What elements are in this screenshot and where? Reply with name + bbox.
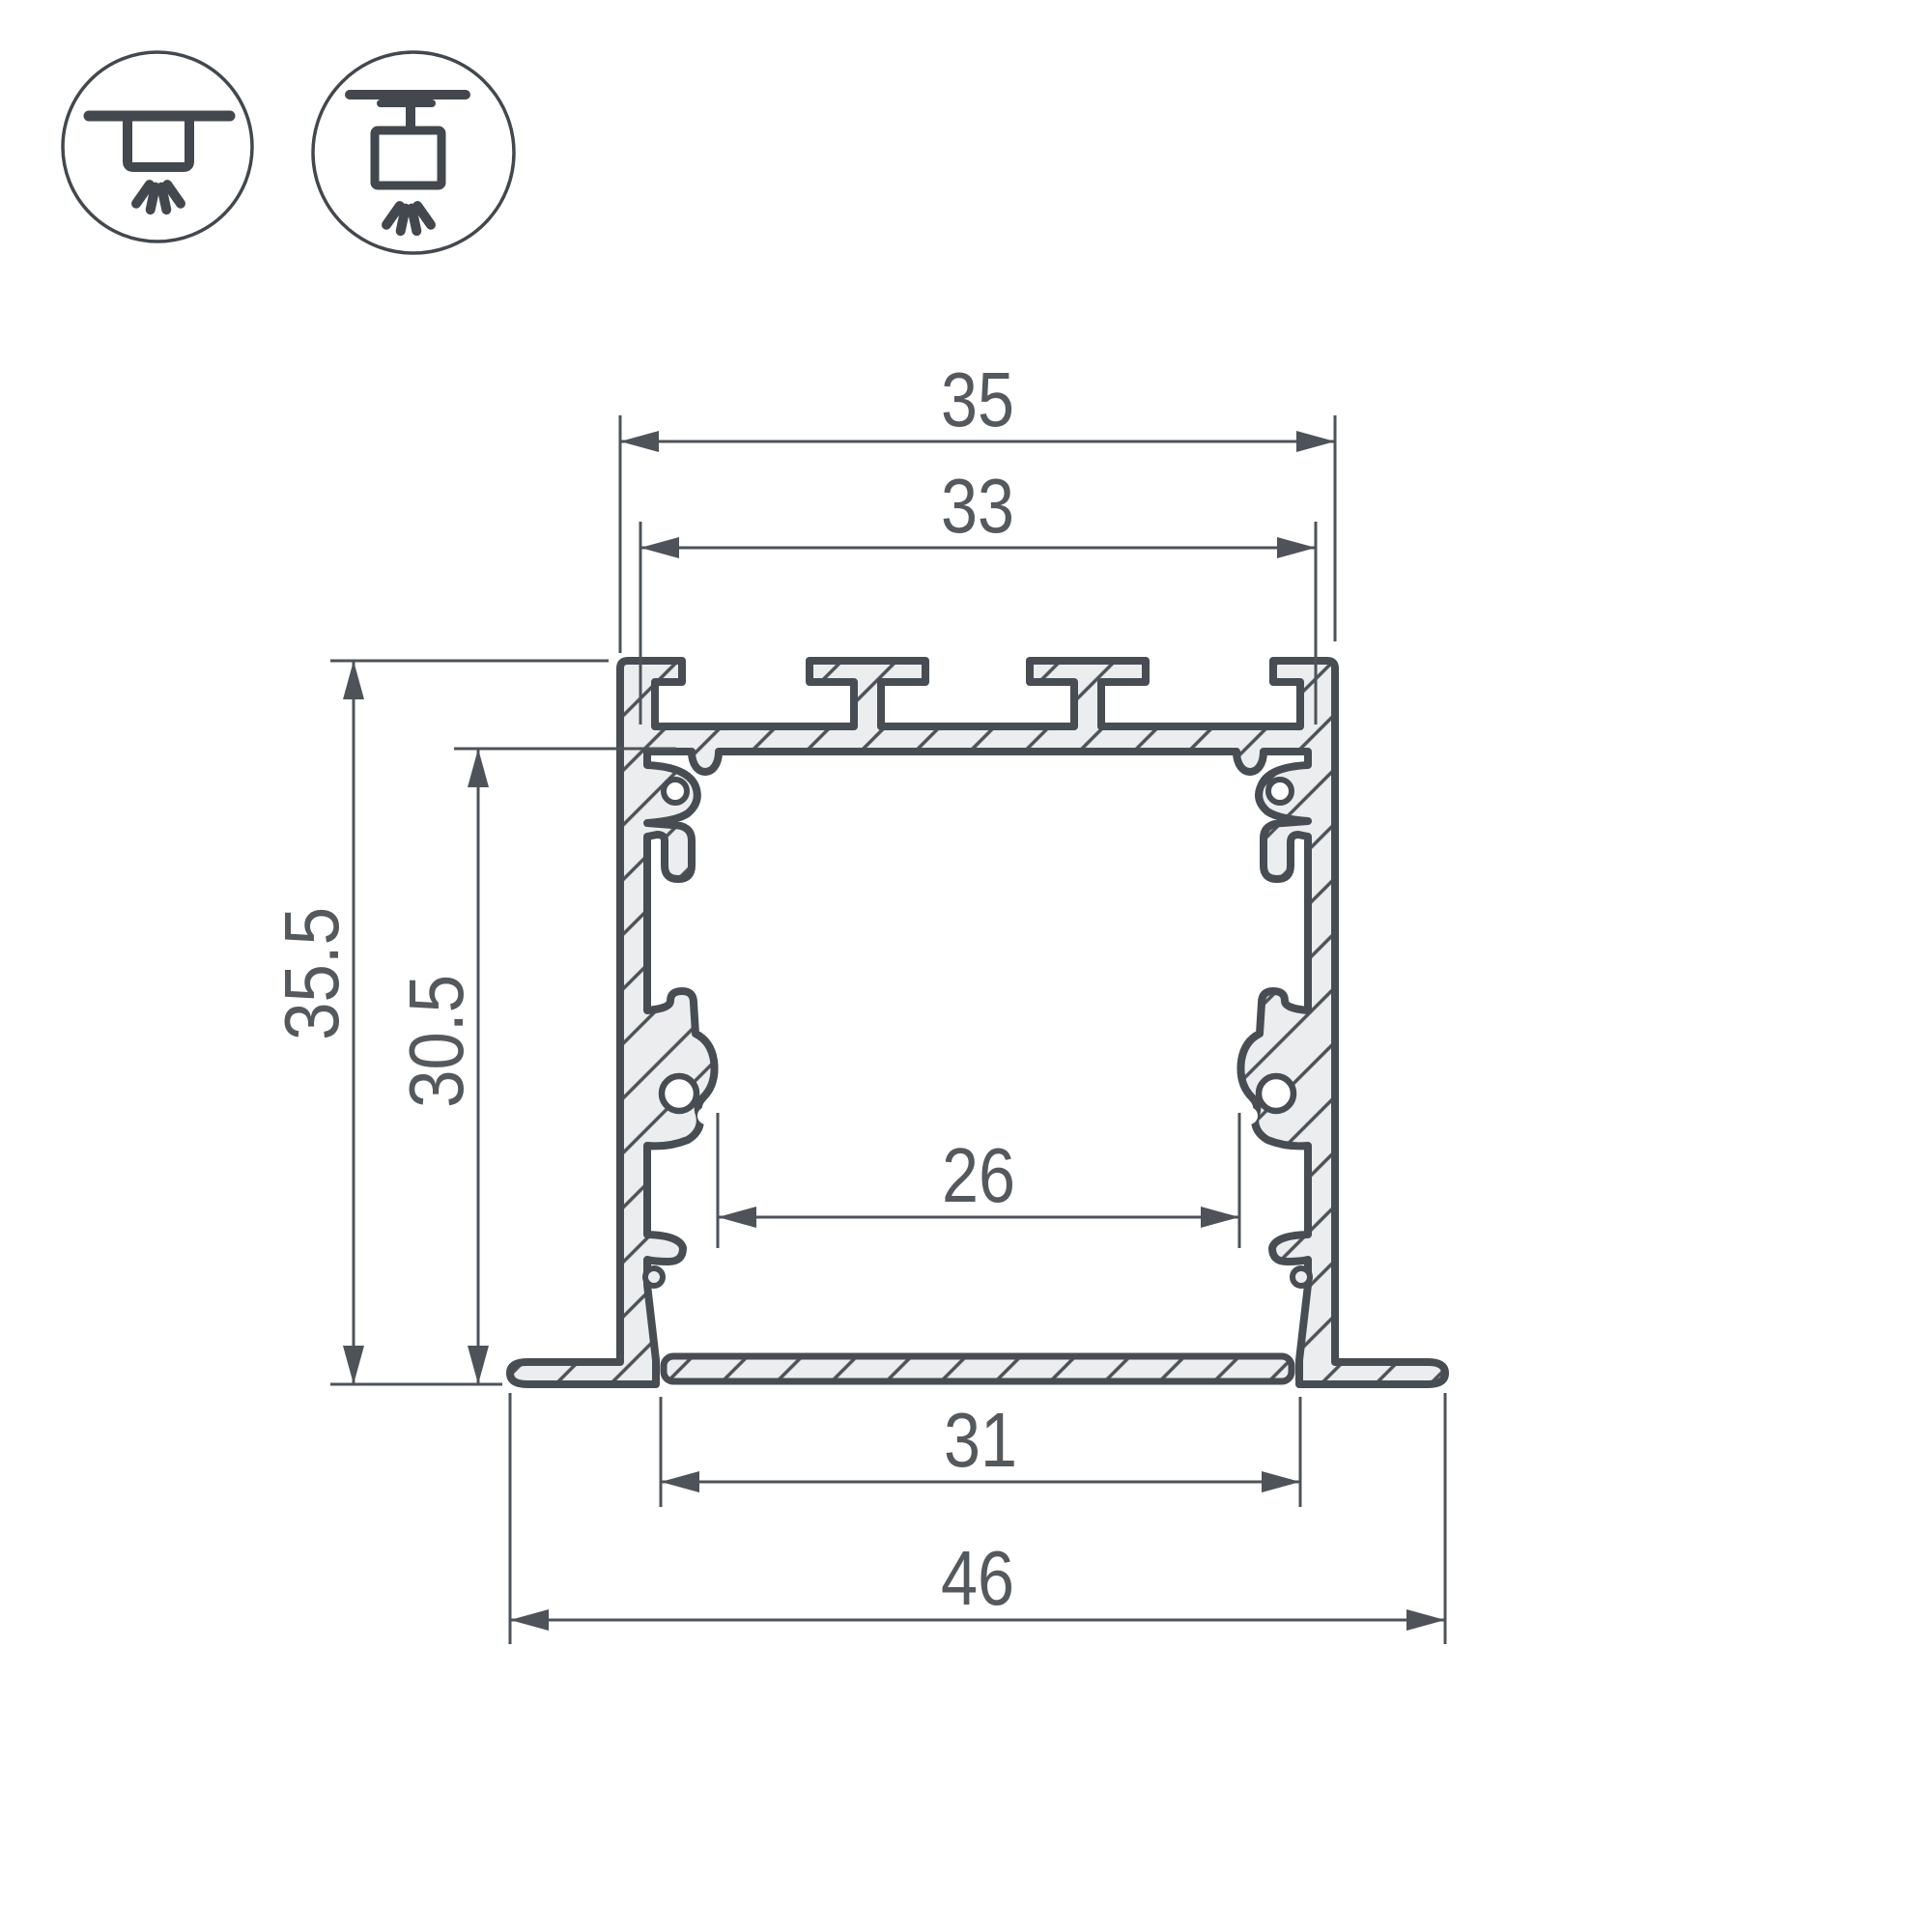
dimension-label-recess-opening-width: 31 bbox=[944, 1397, 1017, 1483]
dimension-label-inner-height: 30.5 bbox=[393, 975, 479, 1108]
right-upper-clip-pocket bbox=[1268, 780, 1292, 803]
dimension-top-inner-width: 33 bbox=[640, 463, 1316, 724]
arrowhead bbox=[1201, 1207, 1239, 1228]
right-clip-mouth bbox=[1240, 1107, 1258, 1124]
light-rays-icon bbox=[136, 185, 181, 210]
left-spring-bulb bbox=[645, 1268, 663, 1286]
dimension-inner-width: 26 bbox=[718, 1113, 1239, 1248]
arrowhead bbox=[620, 431, 659, 452]
profile-cross-section bbox=[483, 638, 1478, 1410]
left-screw-boss-pocket bbox=[662, 1076, 696, 1111]
arrowhead bbox=[1277, 537, 1316, 558]
light-rays-icon bbox=[386, 206, 431, 231]
dimension-label-top-outer-width: 35 bbox=[941, 356, 1014, 442]
arrowhead bbox=[1296, 431, 1335, 452]
arrowhead bbox=[468, 1346, 489, 1384]
surface-housing-icon bbox=[375, 130, 441, 185]
arrowhead bbox=[661, 1471, 699, 1492]
arrowhead bbox=[510, 1609, 549, 1631]
right-spring-bulb bbox=[1293, 1268, 1310, 1286]
left-clip-mouth bbox=[697, 1107, 715, 1124]
arrowhead bbox=[1406, 1609, 1445, 1631]
recessed-housing-icon bbox=[128, 121, 189, 167]
mount-icons bbox=[63, 52, 514, 253]
recessed-mount-icon-circle bbox=[63, 52, 252, 241]
arrowhead bbox=[343, 1346, 364, 1384]
right-screw-boss-pocket bbox=[1259, 1076, 1293, 1111]
arrowhead bbox=[718, 1207, 756, 1228]
recessed-mount-icon bbox=[63, 52, 252, 241]
left-upper-clip-pocket bbox=[664, 780, 687, 803]
dimension-label-top-inner-width: 33 bbox=[941, 463, 1014, 549]
dimension-label-inner-width: 26 bbox=[942, 1132, 1015, 1218]
dimension-recess-opening-width: 31 bbox=[661, 1397, 1300, 1507]
drawing-page: 35 33 35.5 30.5 bbox=[0, 0, 1932, 1932]
dimension-label-overall-height: 35.5 bbox=[269, 907, 355, 1040]
arrowhead bbox=[343, 661, 364, 699]
arrowhead bbox=[468, 749, 489, 787]
arrowhead bbox=[1262, 1471, 1300, 1492]
arrowhead bbox=[640, 537, 679, 558]
surface-mount-icon bbox=[313, 52, 514, 253]
dimension-label-flange-overall-width: 46 bbox=[941, 1535, 1014, 1621]
profile-cross-section-drawing: 35 33 35.5 30.5 bbox=[0, 0, 1932, 1932]
